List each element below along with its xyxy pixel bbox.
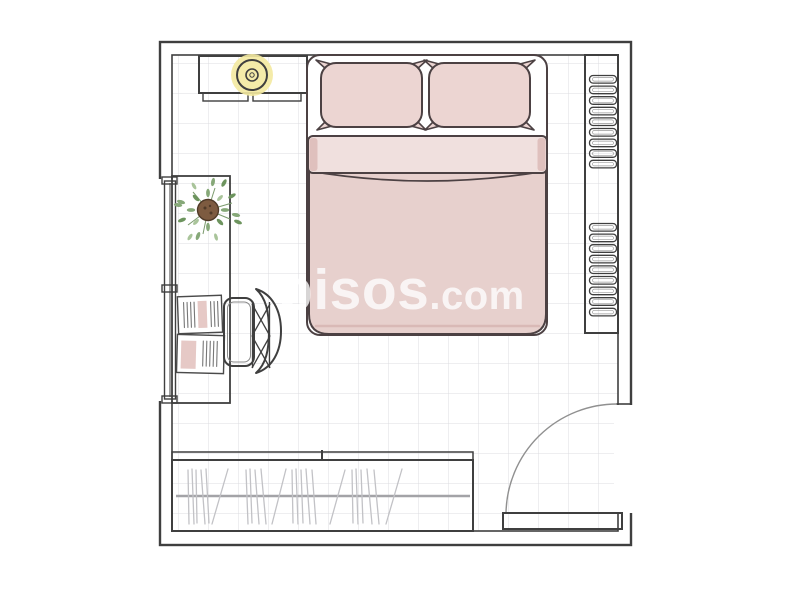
sheet-fold <box>308 136 547 173</box>
floorplan-image: pisos.com <box>0 0 800 600</box>
double-bed <box>307 55 547 335</box>
pillow-left <box>316 60 427 130</box>
floorplan-canvas <box>0 0 800 600</box>
table-lamp <box>231 54 273 96</box>
window <box>150 177 178 403</box>
pillow-right <box>424 60 535 130</box>
duvet <box>309 150 546 334</box>
